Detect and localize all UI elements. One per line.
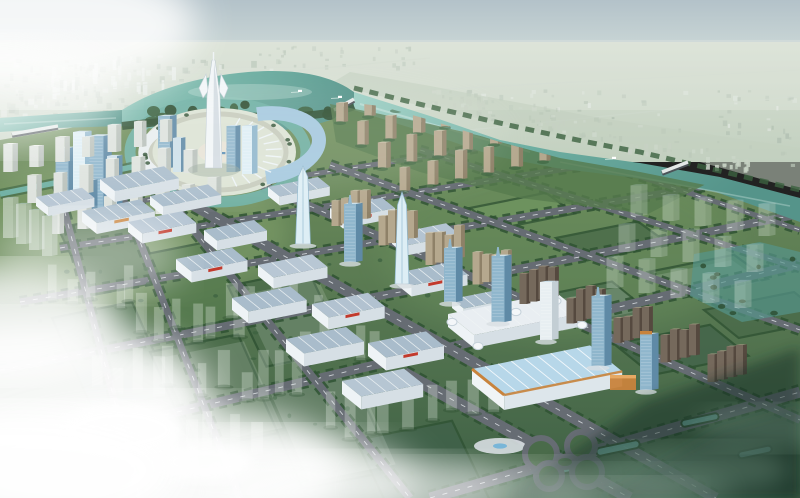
tower-side (758, 244, 764, 273)
tower-side (605, 295, 612, 366)
residential-slab (407, 210, 418, 238)
tower-side (682, 268, 688, 298)
distant-building (738, 123, 741, 129)
tower-face (680, 330, 687, 358)
tree (313, 423, 317, 426)
ghost-tower (367, 404, 375, 434)
residential-slab (332, 200, 343, 226)
distant-building (657, 113, 660, 116)
ghost-tower-base (464, 411, 482, 416)
tower-podium (635, 389, 657, 394)
tree (425, 184, 437, 188)
forecourt-pool (493, 443, 507, 448)
tower-face (689, 324, 696, 355)
residential-slab (529, 269, 540, 302)
ghost-tower-base (222, 315, 241, 320)
wetland-trees (700, 264, 706, 269)
ghost-tower (663, 194, 680, 221)
tower-podium (486, 321, 509, 326)
distant-building (719, 116, 724, 118)
tower-face (607, 257, 618, 288)
tower-face (715, 237, 726, 267)
tower-side (694, 229, 700, 262)
tower-face (614, 318, 621, 343)
residential-slab (426, 232, 437, 265)
tree (397, 190, 409, 194)
distant-building (785, 133, 789, 138)
tree (378, 258, 383, 262)
ghost-tower (206, 307, 215, 339)
tower-podium (439, 301, 461, 306)
tree (327, 263, 331, 266)
ghost-tower (172, 299, 180, 328)
tree (253, 331, 259, 334)
ghost-tower (136, 293, 147, 333)
ghost-tower (242, 372, 253, 400)
tree (264, 253, 269, 257)
boat-wake (605, 159, 613, 160)
tower-side (714, 272, 720, 303)
dome (473, 342, 483, 349)
ghost-tower (619, 223, 636, 252)
ghost-tower (695, 197, 712, 226)
tower-face (633, 308, 640, 338)
ghost-tower (715, 236, 732, 267)
tower-side (356, 203, 363, 262)
tower-podium (586, 365, 609, 370)
distant-building (767, 118, 771, 120)
tower-side (650, 258, 656, 293)
strip-tower (492, 247, 512, 322)
tower-face (520, 273, 527, 304)
ghost-tower-base (485, 409, 502, 414)
ghost-tower-base (272, 392, 286, 397)
ghost-tower (631, 184, 648, 216)
gold-crown (640, 331, 652, 334)
ghost-tower-base (323, 425, 338, 430)
tower-face (639, 259, 650, 293)
distant-building (767, 128, 770, 131)
wetland-trees (790, 257, 796, 262)
ghost-tower-base (121, 299, 135, 304)
ghost-tower (671, 268, 688, 298)
residential-slab (661, 334, 672, 362)
ghost-tower-base (289, 392, 305, 397)
cloud-puff (157, 442, 253, 482)
residential-slab (670, 329, 681, 361)
strip-tower (640, 333, 659, 390)
tower-side (652, 333, 659, 390)
tower-side (662, 229, 668, 257)
tower-face (619, 224, 630, 252)
residential-slab (689, 324, 700, 356)
tree (213, 294, 218, 297)
ghost-tower (154, 307, 164, 341)
ghost-tower-base (255, 397, 271, 402)
ghost-tower (639, 258, 656, 293)
cloud (0, 214, 185, 298)
tower-face (576, 289, 583, 321)
dome (511, 308, 521, 315)
ghost-tower (727, 200, 744, 231)
ghost-tower (446, 381, 457, 410)
ghost-tower (193, 304, 203, 343)
dome (577, 321, 587, 328)
tree (251, 357, 257, 360)
tower-face (407, 211, 414, 238)
residential-slab (567, 298, 578, 324)
wetland-trees (730, 311, 737, 315)
tower-face (663, 195, 674, 221)
tower-face (3, 198, 13, 238)
scene-svg (0, 0, 800, 498)
distant-building (727, 110, 731, 113)
tower-face (540, 282, 552, 340)
tree (278, 346, 282, 349)
wetland-trees (770, 311, 778, 316)
tower-face (344, 204, 356, 262)
strip-tower (444, 239, 463, 302)
tower-podium (290, 243, 317, 248)
tower-face (332, 200, 339, 226)
distant-building (777, 138, 781, 143)
tower-face (727, 201, 738, 231)
dome (447, 318, 457, 325)
ghost-tower (218, 350, 230, 387)
tower-face (426, 233, 433, 265)
tower-face (388, 210, 395, 243)
tower-face (511, 144, 519, 167)
ghost-tower-base (425, 418, 440, 423)
wetland-trees (718, 304, 725, 309)
tower-face (567, 298, 574, 323)
ghost-tower (607, 256, 624, 288)
distant-building (726, 131, 730, 135)
distant-building (723, 120, 727, 126)
orange-podium-roof (610, 375, 636, 378)
ghost-tower (275, 350, 284, 394)
tree (275, 242, 279, 246)
tower-side (674, 194, 680, 221)
tower-face (586, 286, 593, 319)
tree (481, 172, 493, 176)
strip-tower (344, 195, 363, 262)
tower-face (703, 273, 714, 303)
ghost-tower-base (399, 427, 418, 432)
tower-face (708, 354, 715, 382)
tower-face (695, 198, 706, 226)
tower-side (738, 200, 744, 231)
residential-slab (576, 289, 587, 322)
tower-face (651, 230, 662, 257)
ghost-tower-base (443, 408, 460, 413)
tree (537, 160, 549, 164)
ghost-tower-base (374, 431, 392, 436)
tower-face (623, 317, 630, 341)
ghost-tower-base (230, 335, 248, 340)
distant-building (789, 137, 792, 140)
tower-face (735, 281, 746, 308)
tower-side (746, 280, 752, 308)
ghost-tower-base (214, 385, 233, 390)
residential-slab (473, 251, 484, 284)
tower-face (492, 256, 505, 322)
tower-podium (535, 339, 557, 344)
tower-podium (389, 283, 414, 288)
tower-side (630, 223, 636, 252)
tower-side (505, 255, 512, 322)
tower-side (706, 197, 712, 226)
distant-building (771, 126, 773, 130)
ghost-tower (651, 229, 668, 257)
tower-side (726, 236, 732, 267)
residential-slab (482, 254, 493, 283)
tower-side (642, 184, 648, 216)
tower-side (770, 203, 776, 236)
orange-podium (610, 378, 636, 390)
ghost-tower-base (239, 398, 256, 403)
tower-face (759, 204, 770, 236)
ghost-tower (258, 350, 268, 399)
tower-face (529, 270, 536, 302)
distant-building (737, 131, 741, 135)
tree (453, 178, 465, 182)
tower-face (661, 335, 668, 363)
distant-building (612, 117, 615, 119)
ghost-tower-base (190, 340, 205, 345)
strip-tower (540, 281, 559, 340)
tree (287, 413, 291, 418)
tower-side (696, 324, 700, 356)
tower-face (473, 252, 480, 284)
ghost-tower (735, 280, 752, 308)
tower-face (670, 329, 677, 360)
tower-face (671, 269, 682, 298)
distant-building (783, 129, 785, 134)
tower-face (747, 245, 758, 272)
tower-face (631, 185, 642, 216)
masterplan-render (0, 0, 800, 498)
tower-side (618, 256, 624, 288)
tower-side (552, 281, 559, 340)
ghost-tower (703, 272, 720, 303)
ghost-tower-base (354, 357, 368, 362)
tower-face (444, 248, 456, 302)
distant-building (728, 124, 730, 128)
residential-slab (614, 317, 625, 343)
tree (509, 166, 521, 170)
residential-slab (623, 316, 634, 341)
ghost-tower (683, 229, 700, 262)
ghost-tower-base (170, 326, 183, 331)
tower-face (683, 230, 694, 262)
residential-slab (520, 273, 531, 304)
tower-side (367, 190, 371, 219)
ghost-tower (759, 203, 776, 236)
residential-slab (379, 215, 390, 246)
far-bank-residential (706, 164, 710, 170)
cloud-puff (60, 404, 180, 456)
tower-podium (339, 261, 361, 266)
tower-face (482, 254, 489, 282)
tower-face (379, 216, 386, 246)
ghost-tower (747, 244, 764, 273)
boat (612, 157, 616, 159)
tower-side (456, 247, 463, 302)
strip-tower (592, 287, 612, 366)
ghost-tower (326, 392, 335, 428)
ghost-tower-base (203, 336, 218, 341)
tower-side (414, 210, 418, 238)
ghost-tower (428, 385, 437, 421)
tower-face (435, 232, 442, 262)
residential-slab (680, 329, 691, 358)
